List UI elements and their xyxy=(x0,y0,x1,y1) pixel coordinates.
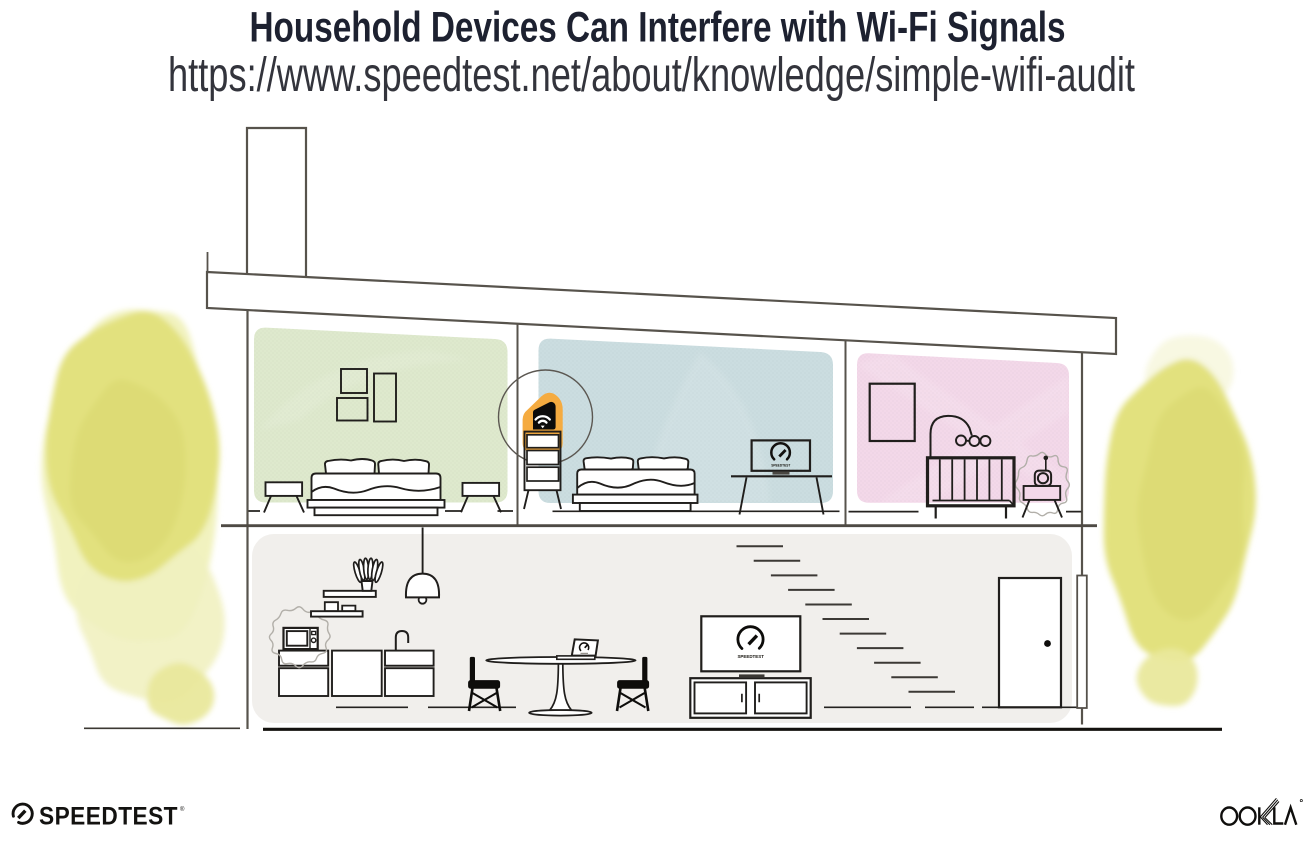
svg-text:https://www.speedtest.net/abou: https://www.speedtest.net/about/knowledg… xyxy=(168,48,1135,102)
svg-text:Household Devices Can Interfer: Household Devices Can Interfere with Wi-… xyxy=(250,5,1066,52)
svg-text:SPEEDTEST: SPEEDTEST xyxy=(39,803,178,830)
svg-text:SPEEDTEST: SPEEDTEST xyxy=(737,654,764,659)
svg-text:®: ® xyxy=(180,806,185,813)
svg-text:SPEEDTEST: SPEEDTEST xyxy=(771,463,791,467)
